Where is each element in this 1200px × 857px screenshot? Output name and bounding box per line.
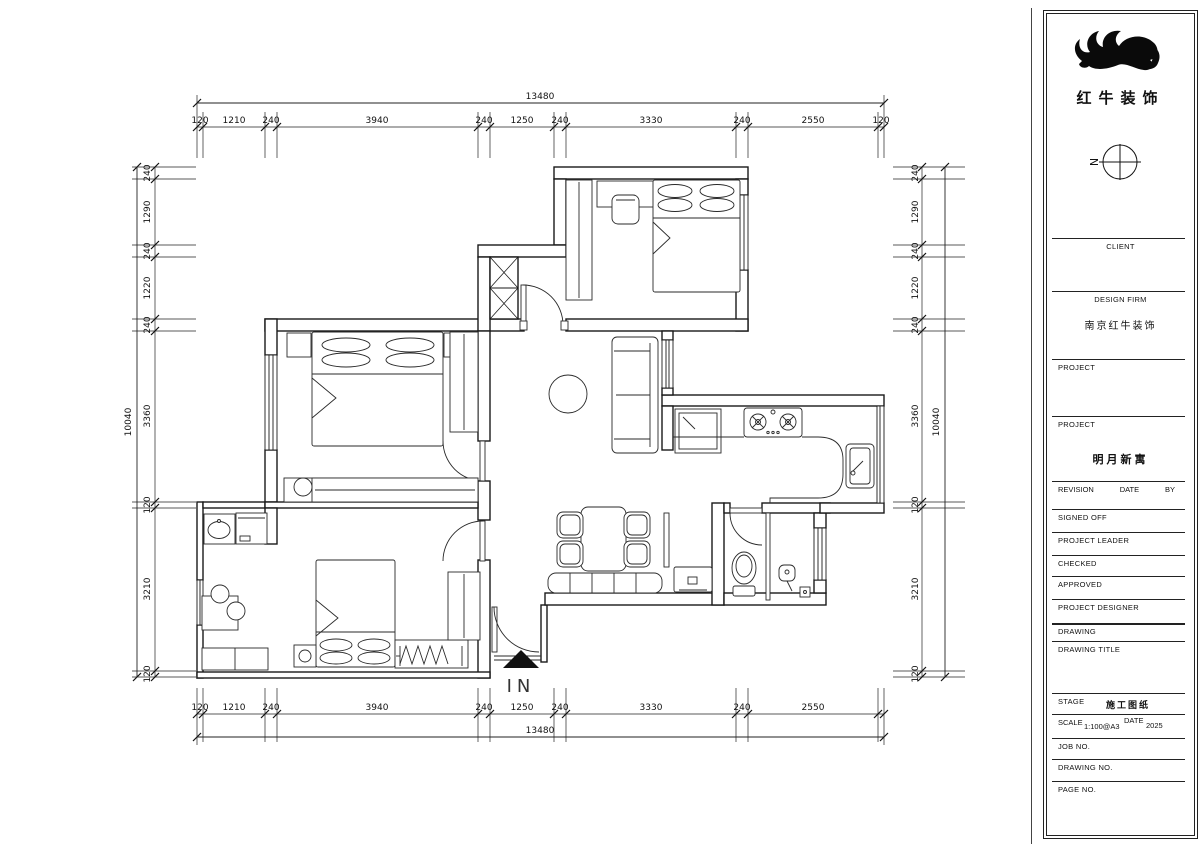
master-bed [312, 332, 443, 446]
entry-arrow-icon [503, 650, 539, 668]
date-label-2: DATE [1124, 716, 1143, 725]
svg-text:10040: 10040 [932, 407, 942, 436]
date-value: 2025 [1146, 721, 1163, 730]
master-door [443, 441, 485, 481]
drawing-title-label: DRAWING TITLE [1058, 645, 1120, 654]
svg-text:240: 240 [262, 703, 279, 713]
svg-text:2550: 2550 [802, 116, 825, 126]
drawing-label: DRAWING [1058, 627, 1096, 636]
svg-text:1220: 1220 [911, 276, 921, 299]
svg-text:3330: 3330 [640, 703, 663, 713]
gas-stove [744, 408, 802, 437]
entry-marker: IN [503, 650, 539, 697]
bathroom-window [814, 528, 826, 580]
svg-text:3210: 3210 [143, 577, 153, 600]
svg-text:120: 120 [143, 665, 153, 682]
svg-text:N: N [1088, 158, 1101, 166]
svg-text:3360: 3360 [911, 404, 921, 427]
bedroom3-wardrobe-south [395, 640, 468, 668]
project-label-2: PROJECT [1058, 420, 1095, 429]
entry-door [492, 607, 541, 660]
svg-text:240: 240 [143, 164, 153, 181]
svg-text:3360: 3360 [143, 404, 153, 427]
kitchen-sink [846, 444, 874, 488]
dining-table [581, 507, 626, 571]
client-label: CLIENT [1044, 242, 1197, 251]
svg-text:3330: 3330 [640, 116, 663, 126]
bedroom3-door [443, 521, 485, 561]
fridge [675, 409, 721, 453]
scale-value: 1:100@A3 [1084, 722, 1120, 731]
svg-text:13480: 13480 [526, 92, 555, 102]
entry-label: IN [507, 676, 536, 697]
svg-text:240: 240 [911, 242, 921, 259]
company-name: 红牛装饰 [1044, 87, 1197, 108]
tv-cabinet [548, 573, 662, 593]
svg-text:240: 240 [551, 703, 568, 713]
bedroom3-bed [316, 560, 395, 667]
drawing-no-label: DRAWING NO. [1058, 763, 1113, 772]
svg-text:240: 240 [733, 703, 750, 713]
dimension-bottom: 13480 120 1210 240 3940 240 1250 240 333… [191, 688, 888, 745]
stage-value: 施工图纸 [1106, 698, 1150, 711]
dimension-right: 10040 240 1290 240 1220 240 3360 120 321… [893, 163, 965, 683]
svg-text:10040: 10040 [124, 407, 134, 436]
master-wardrobe-south [284, 478, 478, 502]
bedroom1-wardrobe [566, 180, 592, 300]
bathroom-divider [766, 513, 770, 600]
dining-chair [624, 541, 650, 567]
svg-text:240: 240 [475, 116, 492, 126]
signed-off-label: SIGNED OFF [1058, 513, 1107, 522]
svg-text:240: 240 [143, 316, 153, 333]
svg-text:2550: 2550 [802, 703, 825, 713]
dining-chair [624, 512, 650, 538]
dimension-left: 10040 240 1290 240 1220 240 3360 120 321… [124, 163, 196, 683]
shower-head [779, 565, 795, 591]
master-nightstand-left [287, 333, 311, 357]
svg-text:120: 120 [911, 496, 921, 513]
svg-text:1210: 1210 [223, 116, 246, 126]
kitchen-bay-window [877, 406, 884, 503]
svg-text:3210: 3210 [911, 577, 921, 600]
dining-chair [557, 512, 583, 538]
svg-text:240: 240 [551, 116, 568, 126]
svg-text:3940: 3940 [366, 703, 389, 713]
master-wardrobe-east [450, 332, 478, 432]
svg-text:120: 120 [143, 496, 153, 513]
revision-row: REVISION DATE BY [1058, 485, 1175, 494]
svg-text:120: 120 [191, 116, 208, 126]
floor-plan-canvas: IN 13480 120 1210 240 3940 240 1250 240 … [0, 0, 1200, 852]
svg-text:1290: 1290 [911, 200, 921, 223]
company-logo-icon [1044, 21, 1197, 83]
date-label: DATE [1120, 485, 1139, 494]
design-firm-label: DESIGN FIRM [1044, 295, 1197, 304]
svg-text:240: 240 [262, 116, 279, 126]
job-no-label: JOB NO. [1058, 742, 1090, 751]
scale-label: SCALE [1058, 718, 1083, 727]
drawing-sheet: { "plan": { "entry_label": "IN" }, "dims… [0, 0, 1200, 852]
master-window [265, 355, 277, 450]
project-designer-label: PROJECT DESIGNER [1058, 603, 1139, 612]
tv [674, 567, 712, 592]
bedroom3-desk [202, 585, 245, 630]
svg-text:120: 120 [191, 703, 208, 713]
bedroom1-door [520, 285, 568, 330]
toilet [732, 552, 756, 596]
by-label: BY [1165, 485, 1175, 494]
north-indicator-icon: N [1044, 137, 1197, 187]
tea-table [549, 375, 587, 413]
project-leader-label: PROJECT LEADER [1058, 536, 1129, 545]
bathroom-door [730, 508, 762, 545]
svg-text:240: 240 [475, 703, 492, 713]
svg-text:1210: 1210 [223, 703, 246, 713]
dimension-top: 13480 120 1210 240 3940 240 1250 240 333… [191, 92, 889, 158]
svg-text:3940: 3940 [366, 116, 389, 126]
sheet-divider [1031, 8, 1032, 844]
partition-screen [664, 513, 669, 567]
bedroom3-nightstand [294, 645, 316, 667]
bedroom1-bed [653, 180, 740, 292]
svg-text:240: 240 [911, 164, 921, 181]
checked-label: CHECKED [1058, 559, 1097, 568]
approved-label: APPROVED [1058, 580, 1102, 589]
revision-label: REVISION [1058, 485, 1094, 494]
svg-text:240: 240 [911, 316, 921, 333]
dining-chair [557, 541, 583, 567]
living-window [662, 340, 673, 388]
svg-text:1250: 1250 [511, 703, 534, 713]
page-no-label: PAGE NO. [1058, 785, 1096, 794]
svg-text:240: 240 [143, 242, 153, 259]
title-block: 红牛装饰 N CLIENT DESIGN FIRM 南京红牛装饰 PROJECT… [1043, 10, 1198, 839]
stage-label: STAGE [1058, 697, 1084, 706]
project-label-1: PROJECT [1058, 363, 1095, 372]
svg-text:1290: 1290 [143, 200, 153, 223]
bedroom3-cabinet [202, 648, 268, 670]
laundry-washbasin [204, 514, 235, 544]
design-firm-value: 南京红牛装饰 [1044, 317, 1197, 332]
floor-drain [800, 587, 810, 597]
duct-shaft [490, 257, 518, 319]
bedroom1-desk [597, 181, 654, 224]
project-name: 明月新寓 [1044, 451, 1197, 467]
svg-text:120: 120 [911, 665, 921, 682]
sofa [612, 337, 658, 453]
washing-machine [236, 513, 267, 544]
svg-text:120: 120 [872, 116, 889, 126]
svg-text:240: 240 [733, 116, 750, 126]
svg-text:1220: 1220 [143, 276, 153, 299]
svg-text:1250: 1250 [511, 116, 534, 126]
bedroom3-wardrobe-east [448, 572, 480, 640]
svg-text:13480: 13480 [526, 726, 555, 736]
